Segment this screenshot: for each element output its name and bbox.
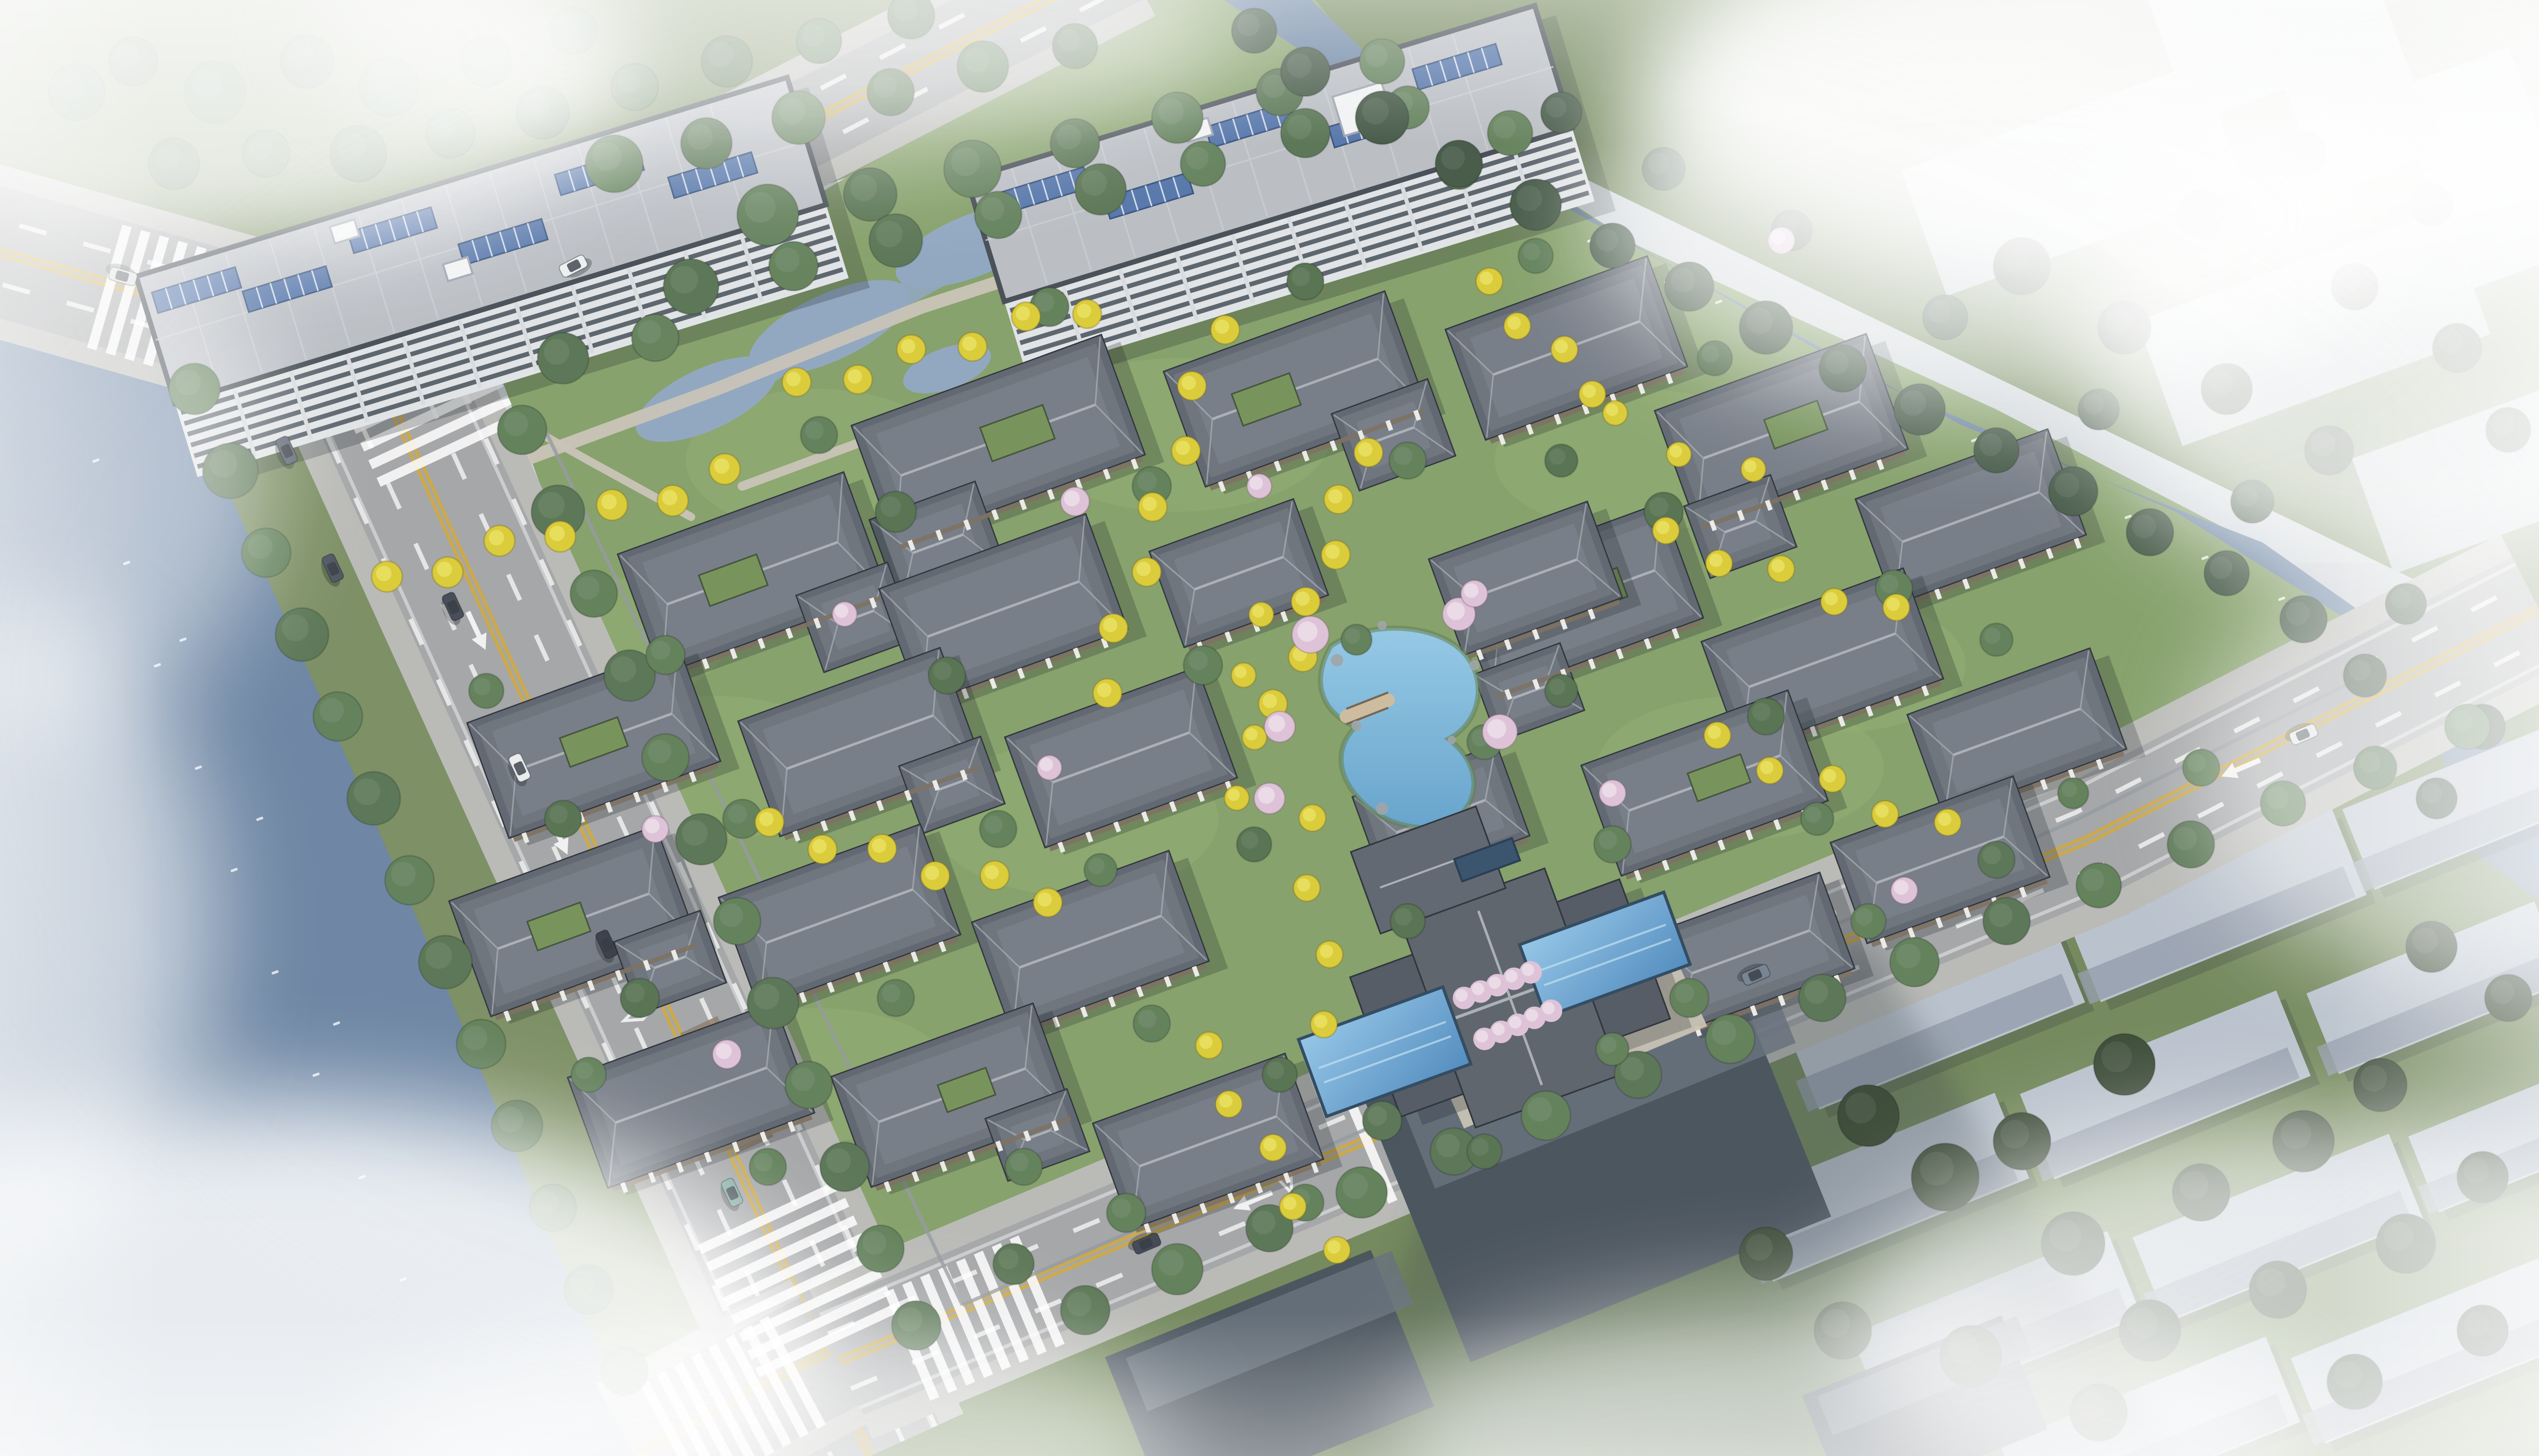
haze-left xyxy=(0,0,164,1456)
haze-right xyxy=(2334,0,2539,1456)
fog-overlay xyxy=(0,0,2539,1456)
haze-top xyxy=(0,0,2539,143)
aerial-render-stage: Aerial rendering of a Chinese courtyard-… xyxy=(0,0,2539,1456)
haze-bottom xyxy=(0,1313,2539,1456)
aerial-rendering xyxy=(0,0,2539,1456)
fog-cloud xyxy=(0,0,2539,1456)
